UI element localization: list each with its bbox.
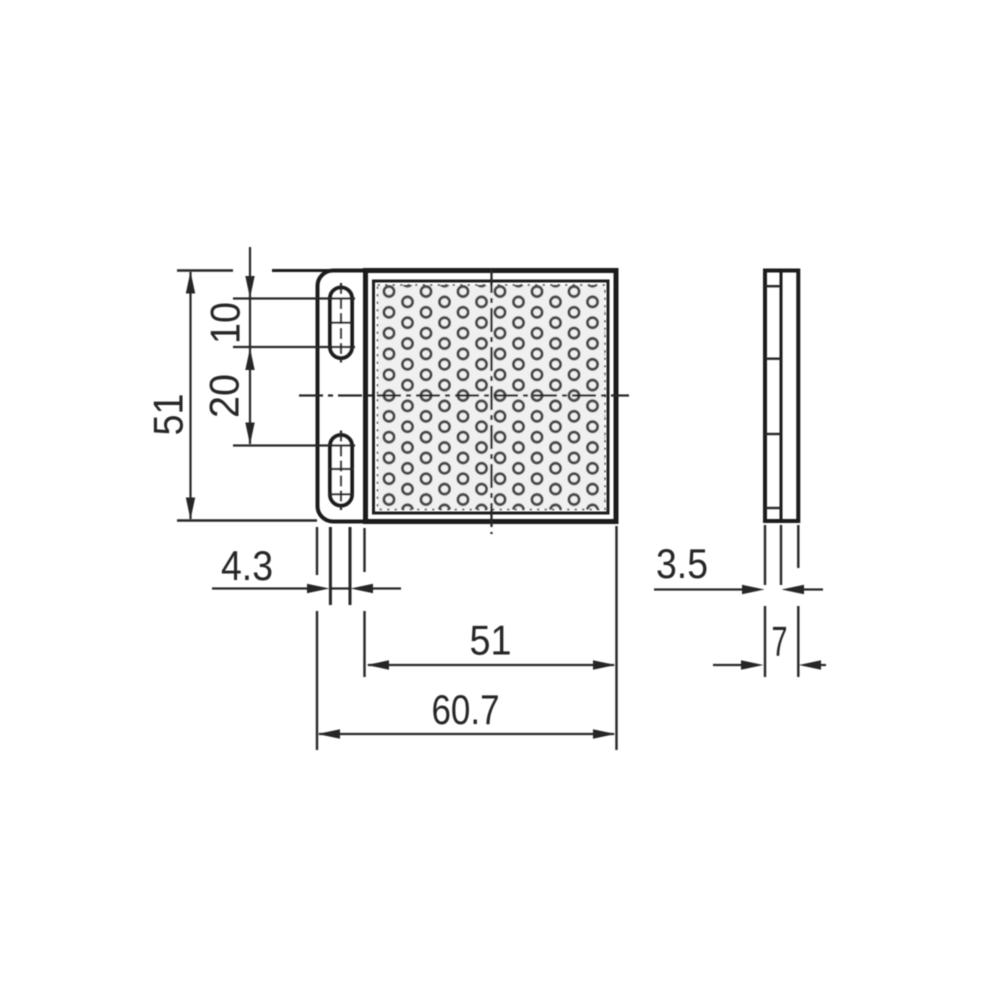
svg-text:4.3: 4.3 bbox=[221, 542, 273, 589]
svg-text:10: 10 bbox=[202, 302, 249, 344]
svg-text:3.5: 3.5 bbox=[656, 540, 708, 587]
svg-text:20: 20 bbox=[201, 374, 248, 418]
svg-text:51: 51 bbox=[470, 617, 512, 664]
svg-text:7: 7 bbox=[772, 618, 788, 665]
svg-text:51: 51 bbox=[145, 394, 192, 436]
svg-text:60.7: 60.7 bbox=[432, 686, 500, 733]
